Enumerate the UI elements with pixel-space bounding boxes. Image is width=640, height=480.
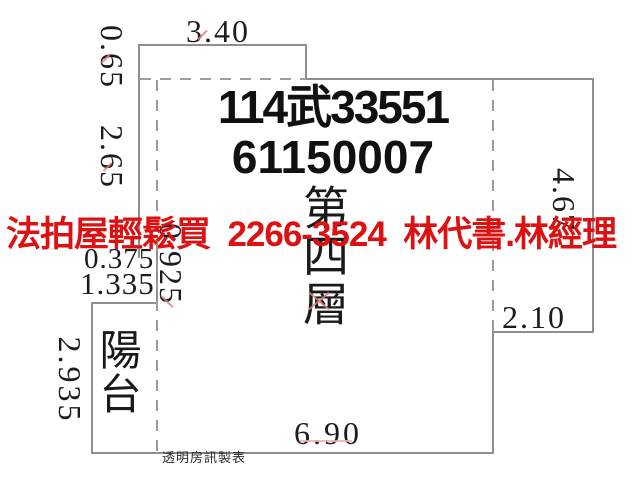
interior-dashed-right [492,80,494,332]
wall-right-lower [492,331,494,454]
balcony-top-wall [91,302,158,304]
case-number-line2: 61150007 [232,134,434,180]
dim-left-upper: 0.65 [96,25,128,89]
dim-balcony-height: 2.935 [54,337,86,424]
dim-top-width: 3.40 [186,15,250,47]
dim-left-middle: 2.65 [96,125,128,189]
wall-top [305,78,594,80]
agent-watermark: 法拍屋輕鬆買 2266-3524 林代書.林經理 [6,216,640,254]
wall-bump-right [305,44,307,80]
interior-dashed-top [140,78,306,80]
balcony-left-wall [91,302,93,454]
wall-right [592,78,594,333]
red-tick-bottom-strike [300,440,352,442]
dim-bottom-width: 6.90 [294,417,362,449]
dim-balcony-width: 1.335 [80,268,155,299]
chart-credit: 透明房訊製表 [162,447,246,466]
balcony-label: 陽台 [96,328,138,416]
dim-right-step-width: 2.10 [502,301,566,333]
floorplan-canvas: 114武33551 61150007 第四層 陽台 3.40 0.65 2.65… [0,0,640,480]
case-number-line1: 114武33551 [218,84,448,130]
wall-bottom [91,452,494,454]
